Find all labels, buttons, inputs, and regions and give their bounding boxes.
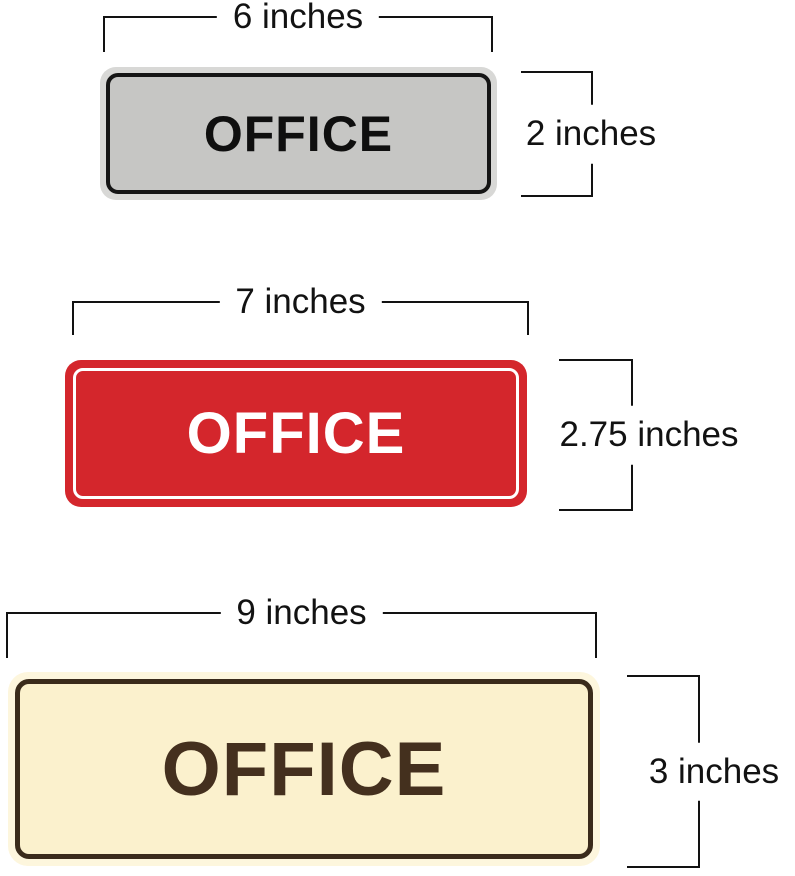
sign-text: OFFICE	[162, 726, 447, 813]
sign-face: OFFICE	[106, 73, 491, 194]
sign-face: OFFICE	[15, 679, 593, 859]
sign-text: OFFICE	[204, 105, 393, 163]
sign-face: OFFICE	[73, 368, 519, 499]
height-dimension-bracket-gray-sign: 2 inches	[521, 71, 593, 197]
width-dimension-bracket-cream-sign: 9 inches	[6, 612, 597, 658]
office-sign-red: OFFICE	[65, 360, 527, 507]
office-sign-cream: OFFICE	[8, 672, 600, 866]
sign-size-diagram: 6 inches OFFICE 2 inches 7 inches OFFICE…	[0, 0, 795, 876]
height-dimension-label: 3 inches	[643, 742, 785, 801]
width-dimension-bracket-red-sign: 7 inches	[72, 301, 529, 335]
height-dimension-label: 2.75 inches	[553, 406, 744, 465]
width-dimension-label: 7 inches	[219, 283, 381, 322]
width-dimension-label: 9 inches	[220, 594, 382, 633]
width-dimension-bracket-gray-sign: 6 inches	[103, 16, 493, 52]
height-dimension-bracket-cream-sign: 3 inches	[627, 675, 700, 868]
height-dimension-bracket-red-sign: 2.75 inches	[559, 359, 633, 511]
sign-text: OFFICE	[187, 400, 406, 467]
width-dimension-label: 6 inches	[217, 0, 379, 36]
height-dimension-label: 2 inches	[520, 105, 662, 164]
office-sign-gray: OFFICE	[100, 67, 497, 200]
